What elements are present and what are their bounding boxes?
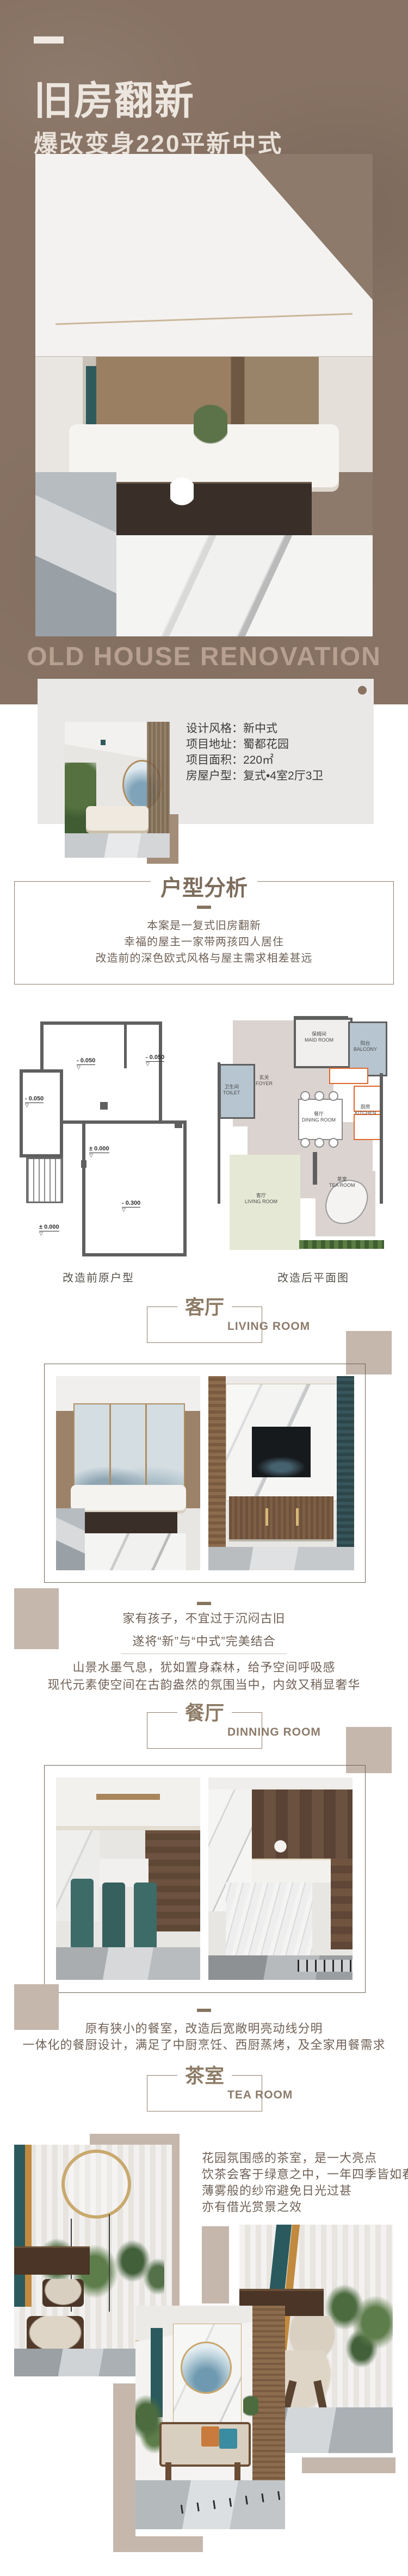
photo-detail xyxy=(194,405,227,453)
section-title-en: TEA ROOM xyxy=(227,2089,293,2102)
photo-detail xyxy=(14,2145,25,2307)
plan-wall xyxy=(380,1073,383,1204)
photo-detail xyxy=(208,1547,354,1570)
photo-detail xyxy=(208,1376,226,1570)
photo-detail xyxy=(298,1960,353,1972)
room-label-zh: 玄关 xyxy=(259,1075,269,1080)
plan-wall xyxy=(124,1025,127,1068)
section-title-en: LIVING ROOM xyxy=(227,1320,310,1333)
divider-dash xyxy=(197,1602,211,1605)
photo-detail xyxy=(96,1794,160,1800)
info-row: 项目面积：220㎡ xyxy=(186,751,274,767)
photo-detail xyxy=(101,740,106,745)
level-annotation: ± 0.000▽ xyxy=(39,1224,59,1237)
photo-detail xyxy=(102,1883,125,1951)
tan-block xyxy=(302,2457,395,2473)
photo-detail xyxy=(265,1508,268,1526)
article-page: 旧房翻新 爆改变身220平新中式 OLD HOUSE RENOVATION 设计… xyxy=(0,0,408,2576)
level-annotation: ± 0.000▽ xyxy=(89,1145,109,1159)
room-label-en: LIVING ROOM xyxy=(245,1199,277,1204)
section-header-living: 客厅 LIVING ROOM xyxy=(147,1306,262,1343)
dining-paragraph-line: 一体化的餐厨设计，满足了中厨烹饪、西厨蒸烤，及全家用餐需求 xyxy=(0,2035,408,2053)
tan-block xyxy=(202,2226,229,2303)
divider-dash xyxy=(197,906,211,909)
info-value: 复式•4室2厅3卫 xyxy=(243,770,323,782)
level-marker-icon: ▽ xyxy=(25,1103,29,1108)
photo-detail xyxy=(134,1883,157,1951)
living-paragraph-line: 遂将“新”与“中式”完美结合 xyxy=(0,1632,408,1649)
photo-detail xyxy=(61,2150,131,2219)
info-thumbnail-photo xyxy=(65,722,170,858)
room-label-zh: 卫生间 xyxy=(224,1084,239,1089)
section-title-zh: 餐厅 xyxy=(177,1697,232,1725)
room-label-en: KITCHEN xyxy=(355,1110,376,1116)
room-label-zh: 保姆间 xyxy=(312,1031,326,1037)
photo-detail xyxy=(96,482,312,535)
plan-chair xyxy=(300,1091,310,1101)
living-paragraph-line: 家有孩子，不宜过于沉闷古旧 xyxy=(0,1609,408,1626)
room-label-zh: 餐厅 xyxy=(314,1111,324,1117)
photo-detail xyxy=(219,2429,237,2449)
analysis-line: 本案是一复式旧房翻新 xyxy=(0,917,408,932)
info-row: 设计风格：新中式 xyxy=(186,720,277,736)
photo-detail xyxy=(42,2279,83,2307)
section-title-zh: 茶室 xyxy=(177,2060,232,2088)
level-text: ± 0.000 xyxy=(89,1145,109,1153)
photo-detail xyxy=(86,806,149,833)
info-row: 房屋户型：复式•4室2厅3卫 xyxy=(186,767,323,783)
level-text: - 0.300 xyxy=(122,1200,140,1207)
info-row: 项目地址：蜀都花园 xyxy=(186,735,289,752)
info-label: 设计风格： xyxy=(186,722,243,735)
room-label: 阳台BALCONY xyxy=(354,1041,377,1052)
living-paragraph-line: 山景水墨气息，犹如置身森林，给予空间呼吸感 xyxy=(0,1658,408,1675)
section-title-en: DINNING ROOM xyxy=(227,1726,321,1739)
photo-detail xyxy=(27,2316,83,2353)
photo-detail xyxy=(252,1789,353,1858)
level-text: - 0.050 xyxy=(25,1095,44,1103)
photo-detail xyxy=(116,535,373,636)
photo-detail xyxy=(296,1508,299,1526)
plan-chair xyxy=(314,1091,324,1101)
header-watermark: OLD HOUSE RENOVATION xyxy=(0,642,408,672)
room-label: 茶室TEA ROOM xyxy=(329,1176,355,1188)
plan-chair xyxy=(300,1138,310,1148)
level-text: ± 0.000 xyxy=(39,1224,59,1231)
plan-wall xyxy=(313,1152,317,1185)
dining-photo-left xyxy=(56,1778,200,1980)
photo-detail xyxy=(273,1838,288,1855)
photo-detail xyxy=(226,1883,312,1967)
photo-detail xyxy=(243,2395,258,2422)
after-plan-caption: 改造后平面图 xyxy=(277,1269,349,1285)
room-label: 玄关FOYER xyxy=(256,1075,273,1087)
level-annotation: - 0.050▽ xyxy=(146,1054,164,1067)
level-text: - 0.050 xyxy=(77,1057,95,1065)
dining-photo-right xyxy=(208,1778,353,1980)
section-header-dining: 餐厅 DINNING ROOM xyxy=(147,1712,262,1749)
room-label-en: DINING ROOM xyxy=(302,1117,336,1123)
plan-chair xyxy=(329,1138,338,1148)
room-label: 餐厅DINING ROOM xyxy=(302,1111,336,1123)
plan-wall xyxy=(218,1062,220,1204)
photo-detail xyxy=(85,1533,186,1570)
plan-room xyxy=(82,1120,187,1256)
room-label: 卫生间TOILET xyxy=(223,1084,240,1096)
photo-detail xyxy=(229,1496,334,1539)
tea-paragraph-line: 亦有借光赏景之效 xyxy=(202,2197,302,2215)
photo-detail xyxy=(56,1778,200,1830)
tan-block xyxy=(113,2536,203,2552)
level-annotation: - 0.050▽ xyxy=(25,1095,44,1109)
room-label-zh: 客厅 xyxy=(256,1193,266,1198)
level-annotation: - 0.050▽ xyxy=(77,1057,95,1070)
photo-detail xyxy=(201,2426,219,2447)
room-label-en: TOILET xyxy=(223,1090,240,1095)
room-label-en: TEA ROOM xyxy=(329,1182,355,1188)
photo-detail xyxy=(35,154,373,357)
photo-detail xyxy=(135,2373,163,2462)
info-label: 房屋户型： xyxy=(186,770,243,782)
tea-paragraph-line: 饮茶会客于绿意之中，一年四季皆如春 xyxy=(202,2165,408,2182)
room-label-en: MAID ROOM xyxy=(305,1037,333,1043)
tea-photo-center xyxy=(135,2306,285,2529)
photo-detail xyxy=(25,2145,32,2307)
photo-detail xyxy=(145,1403,147,1493)
tan-block xyxy=(113,2383,135,2552)
info-value: 220㎡ xyxy=(243,754,274,766)
plan-hedge xyxy=(299,1240,384,1249)
photo-detail xyxy=(109,2214,110,2312)
analysis-title: 户型分析 xyxy=(0,870,408,902)
plan-room xyxy=(20,1069,63,1157)
photo-detail xyxy=(73,1403,185,1495)
photo-detail xyxy=(14,2246,90,2274)
section-title-zh: 客厅 xyxy=(177,1291,232,1320)
analysis-line: 改造前的深色欧式风格与屋主需求相差甚远 xyxy=(0,949,408,965)
photo-detail xyxy=(109,1403,111,1493)
info-label: 项目地址： xyxy=(186,738,243,751)
level-text: - 0.050 xyxy=(146,1054,164,1062)
level-marker-icon: ▽ xyxy=(39,1231,43,1236)
room-label-zh: 厨房 xyxy=(361,1104,370,1110)
title-accent-bar xyxy=(34,36,64,44)
plan-kitchen-cabinet xyxy=(354,1114,382,1140)
level-marker-icon: ▽ xyxy=(77,1064,81,1070)
room-label: 保姆间MAID ROOM xyxy=(305,1031,333,1043)
info-value: 新中式 xyxy=(243,722,277,735)
floorplan-after: 玄关FOYER 保姆间MAID ROOM 阳台BALCONY 卫生间TOILET… xyxy=(218,1016,384,1250)
photo-detail xyxy=(331,1859,353,1949)
photo-detail xyxy=(337,1376,354,1570)
hero-photo xyxy=(35,154,373,636)
room-label: 客厅LIVING ROOM xyxy=(245,1193,277,1205)
plan-stairs xyxy=(26,1157,63,1203)
room-label-en: FOYER xyxy=(256,1081,273,1086)
living-photo-right xyxy=(208,1376,354,1570)
photo-detail xyxy=(181,2342,232,2394)
analysis-line: 幸福的屋主一家带两孩四人居住 xyxy=(0,933,408,949)
paragraph-divider-line xyxy=(121,1654,287,1654)
level-marker-icon: ▽ xyxy=(122,1207,126,1212)
level-marker-icon: ▽ xyxy=(146,1061,150,1067)
photo-detail xyxy=(56,1508,85,1570)
analysis-title-text: 户型分析 xyxy=(151,876,257,900)
photo-detail xyxy=(79,1512,177,1533)
plan-chair xyxy=(314,1138,324,1148)
photo-detail xyxy=(252,1859,331,1883)
level-annotation: - 0.300▽ xyxy=(122,1200,140,1213)
plan-column xyxy=(81,1160,86,1168)
room-label-en: BALCONY xyxy=(354,1046,377,1052)
photo-detail xyxy=(170,472,194,511)
divider-dash xyxy=(197,2009,211,2012)
tea-paragraph-line: 薄雾般的纱帘避免日光过甚 xyxy=(202,2181,352,2199)
level-marker-icon: ▽ xyxy=(89,1153,93,1158)
room-label-zh: 阳台 xyxy=(361,1041,370,1046)
room-label-zh: 茶室 xyxy=(337,1176,347,1182)
photo-detail xyxy=(71,1879,94,1947)
plan-column xyxy=(175,1120,182,1128)
photo-detail xyxy=(35,472,116,636)
plan-wall xyxy=(294,1016,348,1019)
room-label: 厨房KITCHEN xyxy=(355,1104,376,1116)
dining-paragraph-line: 原有狭小的餐室，改造后宽敞明亮动线分明 xyxy=(0,2019,408,2036)
tea-paragraph-line: 花园氛围感的茶室，是一大亮点 xyxy=(202,2148,377,2166)
living-photo-left xyxy=(56,1376,200,1570)
info-value: 蜀都花园 xyxy=(243,738,289,751)
page-title: 旧房翻新 xyxy=(34,69,195,126)
info-label: 项目面积： xyxy=(186,754,243,766)
photo-detail xyxy=(65,833,170,858)
plan-column xyxy=(100,1102,108,1110)
floorplan-before: - 0.050▽ - 0.050▽ - 0.050▽ ± 0.000▽ - 0.… xyxy=(20,1021,183,1250)
section-header-tea: 茶室 TEA ROOM xyxy=(147,2075,262,2111)
photo-detail xyxy=(71,1485,186,1514)
plan-chair xyxy=(329,1091,338,1101)
photo-detail xyxy=(252,1427,310,1477)
living-paragraph-line: 现代元素使空间在古韵盎然的氛围当中，内敛又稍显奢华 xyxy=(0,1675,408,1693)
photo-detail xyxy=(56,1947,200,1980)
plan-kitchen-cabinet xyxy=(329,1068,368,1084)
before-plan-caption: 改造前原户型 xyxy=(63,1269,134,1285)
card-dot-icon xyxy=(358,686,367,695)
